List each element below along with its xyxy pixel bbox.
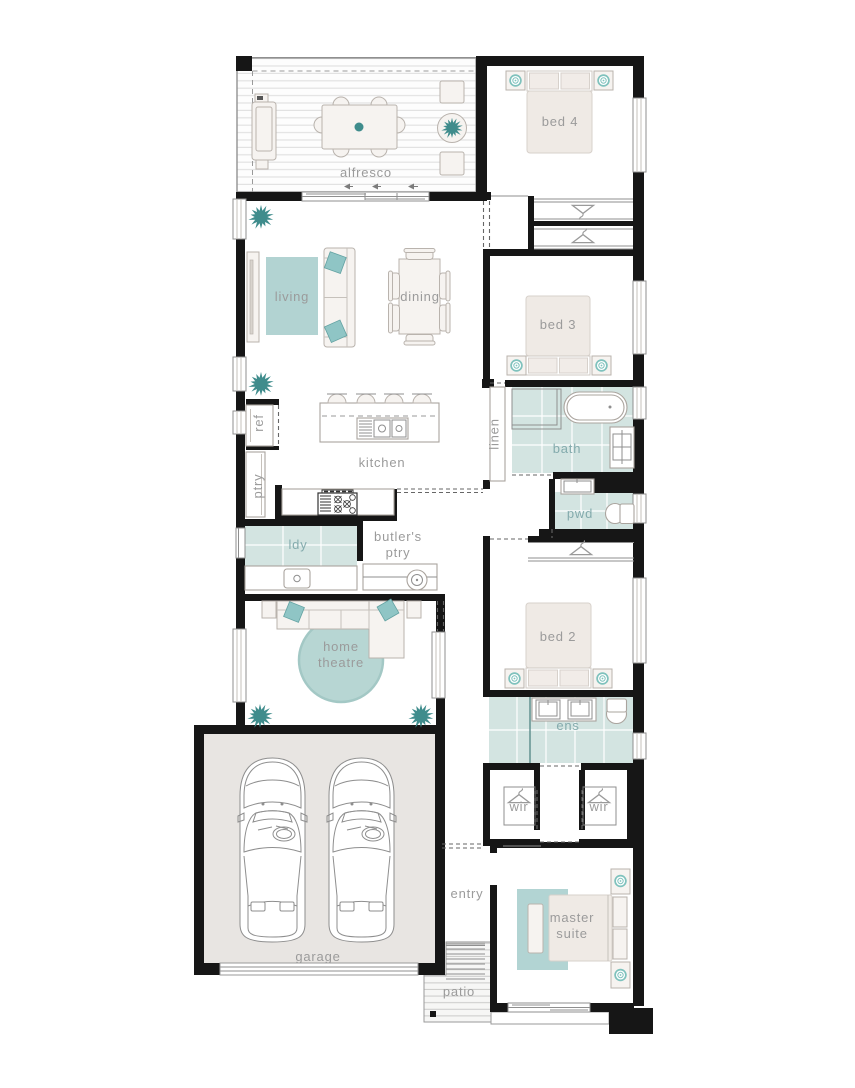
- svg-text:entry: entry: [451, 886, 484, 901]
- svg-text:butler's: butler's: [374, 529, 422, 544]
- svg-text:ens: ens: [556, 718, 579, 733]
- svg-text:bed 3: bed 3: [540, 317, 577, 332]
- svg-text:linen: linen: [487, 418, 502, 449]
- svg-text:wir: wir: [508, 799, 528, 814]
- svg-text:ptry: ptry: [386, 545, 411, 560]
- svg-text:suite: suite: [556, 926, 587, 941]
- svg-text:garage: garage: [295, 949, 340, 964]
- svg-text:dining: dining: [400, 289, 440, 304]
- svg-text:ref: ref: [251, 414, 266, 432]
- svg-text:master: master: [550, 910, 595, 925]
- svg-text:patio: patio: [443, 984, 475, 999]
- svg-text:home: home: [323, 639, 359, 654]
- svg-text:bed 2: bed 2: [540, 629, 577, 644]
- svg-text:bed 4: bed 4: [542, 114, 579, 129]
- svg-text:pwd: pwd: [567, 506, 593, 521]
- svg-text:wir: wir: [588, 799, 608, 814]
- svg-text:bath: bath: [553, 441, 582, 456]
- svg-text:theatre: theatre: [318, 655, 364, 670]
- svg-text:ldy: ldy: [288, 537, 307, 552]
- svg-text:living: living: [275, 289, 309, 304]
- svg-text:kitchen: kitchen: [359, 455, 406, 470]
- svg-text:ptry: ptry: [250, 474, 265, 499]
- svg-text:alfresco: alfresco: [340, 165, 392, 180]
